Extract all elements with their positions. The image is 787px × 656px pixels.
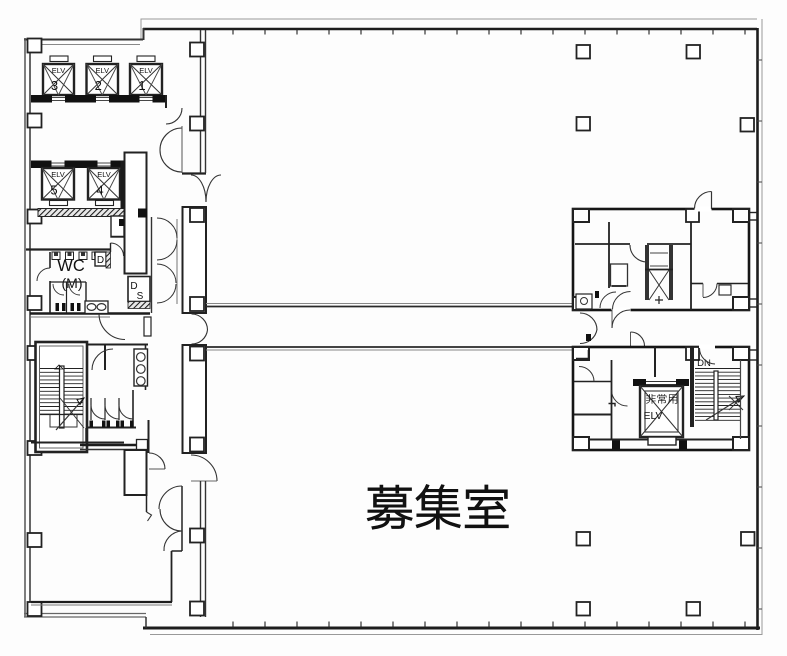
svg-text:1: 1 xyxy=(138,78,145,93)
svg-text:WC: WC xyxy=(57,257,85,275)
svg-text:3: 3 xyxy=(51,78,58,93)
svg-text:ELV: ELV xyxy=(643,410,662,422)
svg-text:D: D xyxy=(97,255,104,266)
svg-text:ELV: ELV xyxy=(139,66,153,75)
svg-text:5: 5 xyxy=(50,183,57,198)
svg-text:ELV: ELV xyxy=(51,170,65,179)
svg-text:4: 4 xyxy=(96,183,103,198)
svg-text:ELV: ELV xyxy=(95,66,109,75)
svg-text:S: S xyxy=(137,291,144,302)
svg-text:(M): (M) xyxy=(62,275,83,291)
svg-text:ELV: ELV xyxy=(52,66,66,75)
svg-text:2: 2 xyxy=(95,78,102,93)
svg-text:ELV: ELV xyxy=(97,170,111,179)
